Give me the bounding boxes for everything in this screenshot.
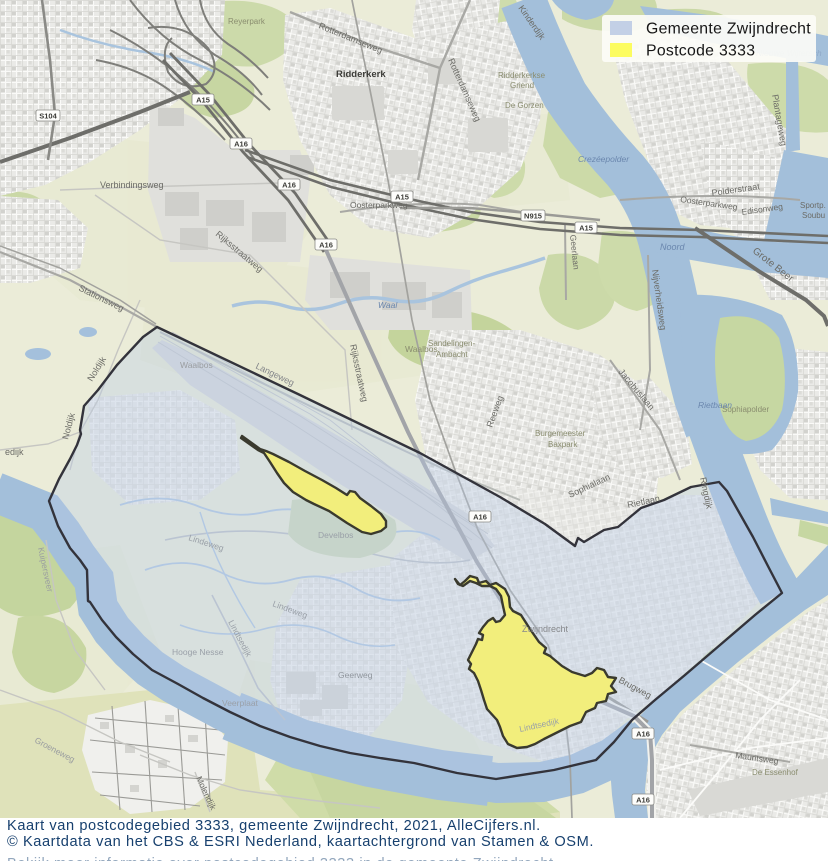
svg-text:A15: A15: [579, 224, 593, 233]
svg-text:Ridderkerk: Ridderkerk: [336, 69, 386, 80]
svg-text:Ridderkerkse: Ridderkerkse: [498, 71, 546, 80]
svg-text:Griend: Griend: [510, 81, 534, 90]
svg-text:Verbindingsweg: Verbindingsweg: [100, 180, 164, 190]
svg-text:Ambacht: Ambacht: [436, 350, 468, 359]
svg-text:Zwijndrecht: Zwijndrecht: [522, 624, 569, 634]
svg-text:N915: N915: [524, 212, 542, 221]
svg-text:A16: A16: [234, 140, 248, 149]
svg-text:Waal: Waal: [378, 300, 398, 310]
svg-text:Waalbos: Waalbos: [180, 360, 213, 370]
svg-text:Burgemeester: Burgemeester: [535, 429, 586, 438]
svg-text:A16: A16: [636, 796, 650, 805]
svg-text:A16: A16: [636, 730, 650, 739]
svg-text:A16: A16: [473, 513, 487, 522]
svg-text:Sportp.: Sportp.: [800, 201, 826, 210]
svg-text:Postcode 3333: Postcode 3333: [646, 43, 755, 60]
svg-text:Sandelingen-: Sandelingen-: [428, 339, 475, 348]
svg-text:Crezéepolder: Crezéepolder: [578, 154, 630, 164]
svg-text:De Essenhof: De Essenhof: [752, 768, 799, 777]
svg-text:Develbos: Develbos: [318, 530, 353, 540]
svg-text:S104: S104: [39, 112, 57, 121]
svg-text:A16: A16: [282, 181, 296, 190]
svg-text:A15: A15: [395, 193, 409, 202]
svg-text:Soubu: Soubu: [802, 211, 825, 220]
svg-text:Geerweg: Geerweg: [338, 670, 373, 680]
svg-text:A15: A15: [196, 96, 210, 105]
svg-text:Gemeente Zwijndrecht: Gemeente Zwijndrecht: [646, 21, 811, 38]
svg-text:Baxpark: Baxpark: [548, 440, 578, 449]
svg-text:Rietbaan: Rietbaan: [698, 400, 732, 410]
svg-text:Hooge Nesse: Hooge Nesse: [172, 647, 224, 657]
svg-text:Noord: Noord: [660, 242, 686, 252]
svg-text:A16: A16: [319, 241, 333, 250]
svg-text:edijk: edijk: [5, 447, 24, 457]
svg-text:Veerplaat: Veerplaat: [222, 698, 259, 708]
svg-text:Reyerpark: Reyerpark: [228, 17, 266, 26]
svg-text:De Gorzen: De Gorzen: [505, 101, 544, 110]
